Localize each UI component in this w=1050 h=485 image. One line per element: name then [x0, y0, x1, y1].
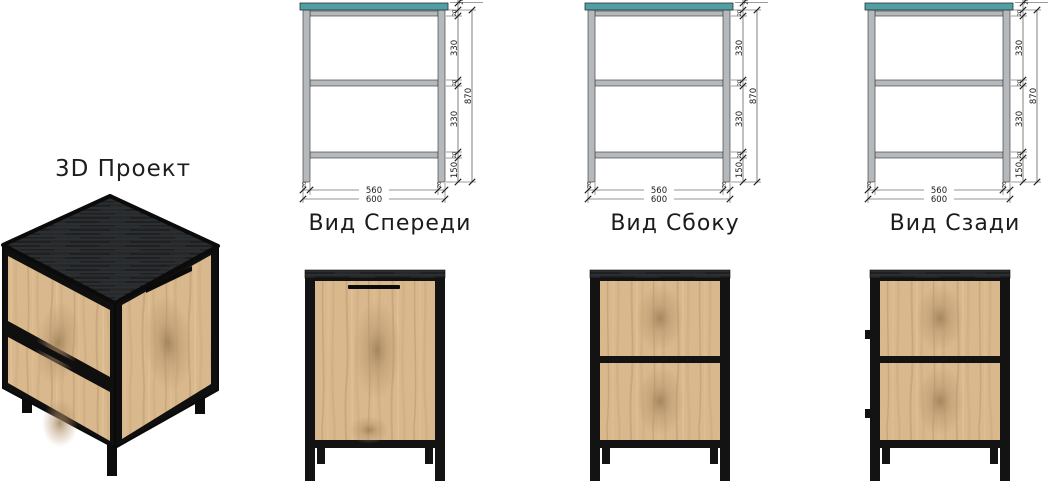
dim-post: 20	[1002, 182, 1008, 188]
dim-section-bottom: 330	[450, 111, 460, 127]
dim-rail: 20	[737, 10, 743, 16]
dim-rail: 20	[1017, 10, 1023, 16]
view-label: Вид Сзади	[860, 211, 1050, 236]
view-column-back: 330 330 150 870 20 20 20 20 560 600 20 2…	[860, 0, 1050, 485]
dim-overall-height: 870	[464, 88, 474, 104]
render-image	[580, 268, 755, 484]
dim-rail-clipped: 20	[459, 0, 465, 5]
dim-overall-width: 600	[366, 195, 382, 205]
render-dark-top	[305, 270, 445, 278]
render-hinges	[865, 330, 870, 418]
render-image	[295, 268, 470, 484]
view-label: Вид Сбоку	[580, 211, 770, 236]
dim-rail: 20	[737, 152, 743, 158]
render-legs	[590, 448, 730, 481]
render-frame-right	[435, 278, 445, 448]
render-dark-top	[870, 270, 1010, 278]
view-column-side: 330 330 150 870 20 20 20 20 560 600 20 2…	[580, 0, 770, 485]
technical-drawing: 330 330 150 870 20 20 20 20 560 600 20 2…	[860, 0, 1050, 207]
dim-leg-height: 150	[735, 162, 745, 178]
frame	[300, 3, 448, 182]
dimension-annotations: 330 330 150 870 20 20 20 20 560 600 20 2…	[585, 0, 768, 205]
frame	[585, 3, 733, 182]
dim-post: 20	[302, 182, 308, 188]
render-middle-rail	[870, 356, 1010, 363]
dim-section-bottom: 330	[1015, 111, 1025, 127]
render-handle-slot	[348, 285, 400, 289]
dim-section-top: 330	[735, 40, 745, 56]
render-legs	[870, 448, 1010, 481]
dimension-ticks	[300, 0, 475, 202]
render-dark-top	[590, 270, 730, 278]
dimension-annotations: 330 330 150 870 20 20 20 20 560 600 20 2…	[865, 0, 1048, 205]
dim-rail: 20	[452, 152, 458, 158]
dimension-ticks	[585, 0, 760, 202]
render-legs	[305, 448, 445, 481]
dim-rail: 20	[737, 80, 743, 86]
technical-drawing: 330 330 150 870 20 20 20 20 560 600 20 2…	[295, 0, 485, 207]
dim-overall-width: 600	[931, 195, 947, 205]
dim-section-top: 330	[450, 40, 460, 56]
dim-rail: 20	[1017, 80, 1023, 86]
dim-leg-height: 150	[1015, 162, 1025, 178]
dim-post: 20	[722, 182, 728, 188]
dim-overall-height: 870	[749, 88, 759, 104]
dim-rail: 20	[452, 80, 458, 86]
dimension-annotations: 330 330 150 870 20 20 20 20 560 600 20 2…	[300, 0, 483, 205]
top-plate	[585, 3, 733, 10]
view-label: Вид Спереди	[295, 211, 485, 236]
render-middle-rail	[590, 356, 730, 363]
dim-post: 20	[437, 182, 443, 188]
render-frame-left	[305, 278, 315, 448]
dim-leg-height: 150	[450, 162, 460, 178]
dim-post: 20	[587, 182, 593, 188]
render-bottom-rail	[870, 440, 1010, 448]
render-bottom-rail	[590, 440, 730, 448]
top-plate	[865, 3, 1013, 10]
frame	[865, 3, 1013, 182]
dim-overall-width: 600	[651, 195, 667, 205]
dim-section-bottom: 330	[735, 111, 745, 127]
dim-rail-clipped: 20	[744, 0, 750, 5]
dim-overall-height: 870	[1029, 88, 1039, 104]
dim-rail: 20	[1017, 152, 1023, 158]
technical-drawing: 330 330 150 870 20 20 20 20 560 600 20 2…	[580, 0, 770, 207]
dim-section-top: 330	[1015, 40, 1025, 56]
dim-rail: 20	[452, 10, 458, 16]
dim-post: 20	[867, 182, 873, 188]
cabinet-3d-render	[0, 193, 240, 485]
dimension-ticks	[865, 0, 1040, 202]
render-image	[860, 268, 1035, 484]
top-plate	[300, 3, 448, 10]
3d-project-title: 3D Проект	[28, 156, 218, 182]
drawing-sheet: 3D Проект	[0, 0, 1050, 485]
dim-rail-clipped: 20	[1024, 0, 1030, 5]
view-column-front: 330 330 150 870 20 20 20 20 560 600 20 2…	[295, 0, 485, 485]
